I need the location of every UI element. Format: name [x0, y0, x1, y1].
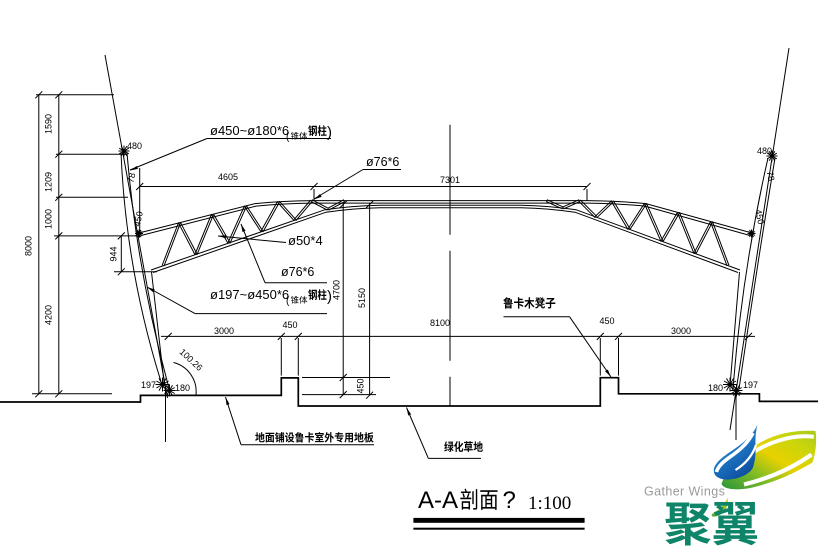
svg-text:4200: 4200	[43, 305, 53, 325]
svg-text:180: 180	[708, 383, 723, 393]
svg-text:ø450~ø180*6: ø450~ø180*6	[210, 123, 289, 138]
svg-text:480: 480	[127, 141, 142, 151]
svg-text:Gather Wings: Gather Wings	[644, 485, 725, 499]
svg-text:197: 197	[141, 380, 156, 390]
svg-text:3000: 3000	[671, 326, 691, 336]
svg-text:4605: 4605	[218, 172, 238, 182]
svg-text:ø50*4: ø50*4	[288, 233, 323, 248]
svg-text:7301: 7301	[440, 175, 460, 185]
svg-text:1000: 1000	[43, 209, 53, 229]
svg-text:1590: 1590	[43, 114, 53, 134]
svg-text:3000: 3000	[214, 326, 234, 336]
svg-text:A-A: A-A	[418, 487, 458, 514]
svg-text:480: 480	[757, 146, 772, 156]
svg-text:4700: 4700	[331, 280, 341, 300]
svg-text:78: 78	[125, 172, 137, 184]
svg-text:1:100: 1:100	[528, 493, 571, 514]
svg-text:450: 450	[355, 378, 365, 393]
svg-text:ø76*6: ø76*6	[366, 155, 399, 169]
svg-text:ø197~ø450*6: ø197~ø450*6	[210, 287, 289, 302]
svg-text:5150: 5150	[357, 288, 367, 308]
svg-text:450: 450	[282, 320, 297, 330]
svg-text:): )	[327, 124, 332, 141]
svg-text:78: 78	[765, 170, 777, 182]
svg-text:8000: 8000	[23, 236, 33, 256]
svg-text:450: 450	[599, 316, 614, 326]
svg-text:180: 180	[175, 383, 190, 393]
svg-text:?: ?	[503, 487, 516, 514]
svg-text:ø76*6: ø76*6	[281, 265, 314, 279]
svg-text:8100: 8100	[430, 318, 450, 328]
svg-text:197: 197	[743, 380, 758, 390]
svg-text:944: 944	[108, 246, 118, 261]
svg-text:): )	[327, 288, 332, 305]
svg-text:1209: 1209	[43, 172, 53, 192]
